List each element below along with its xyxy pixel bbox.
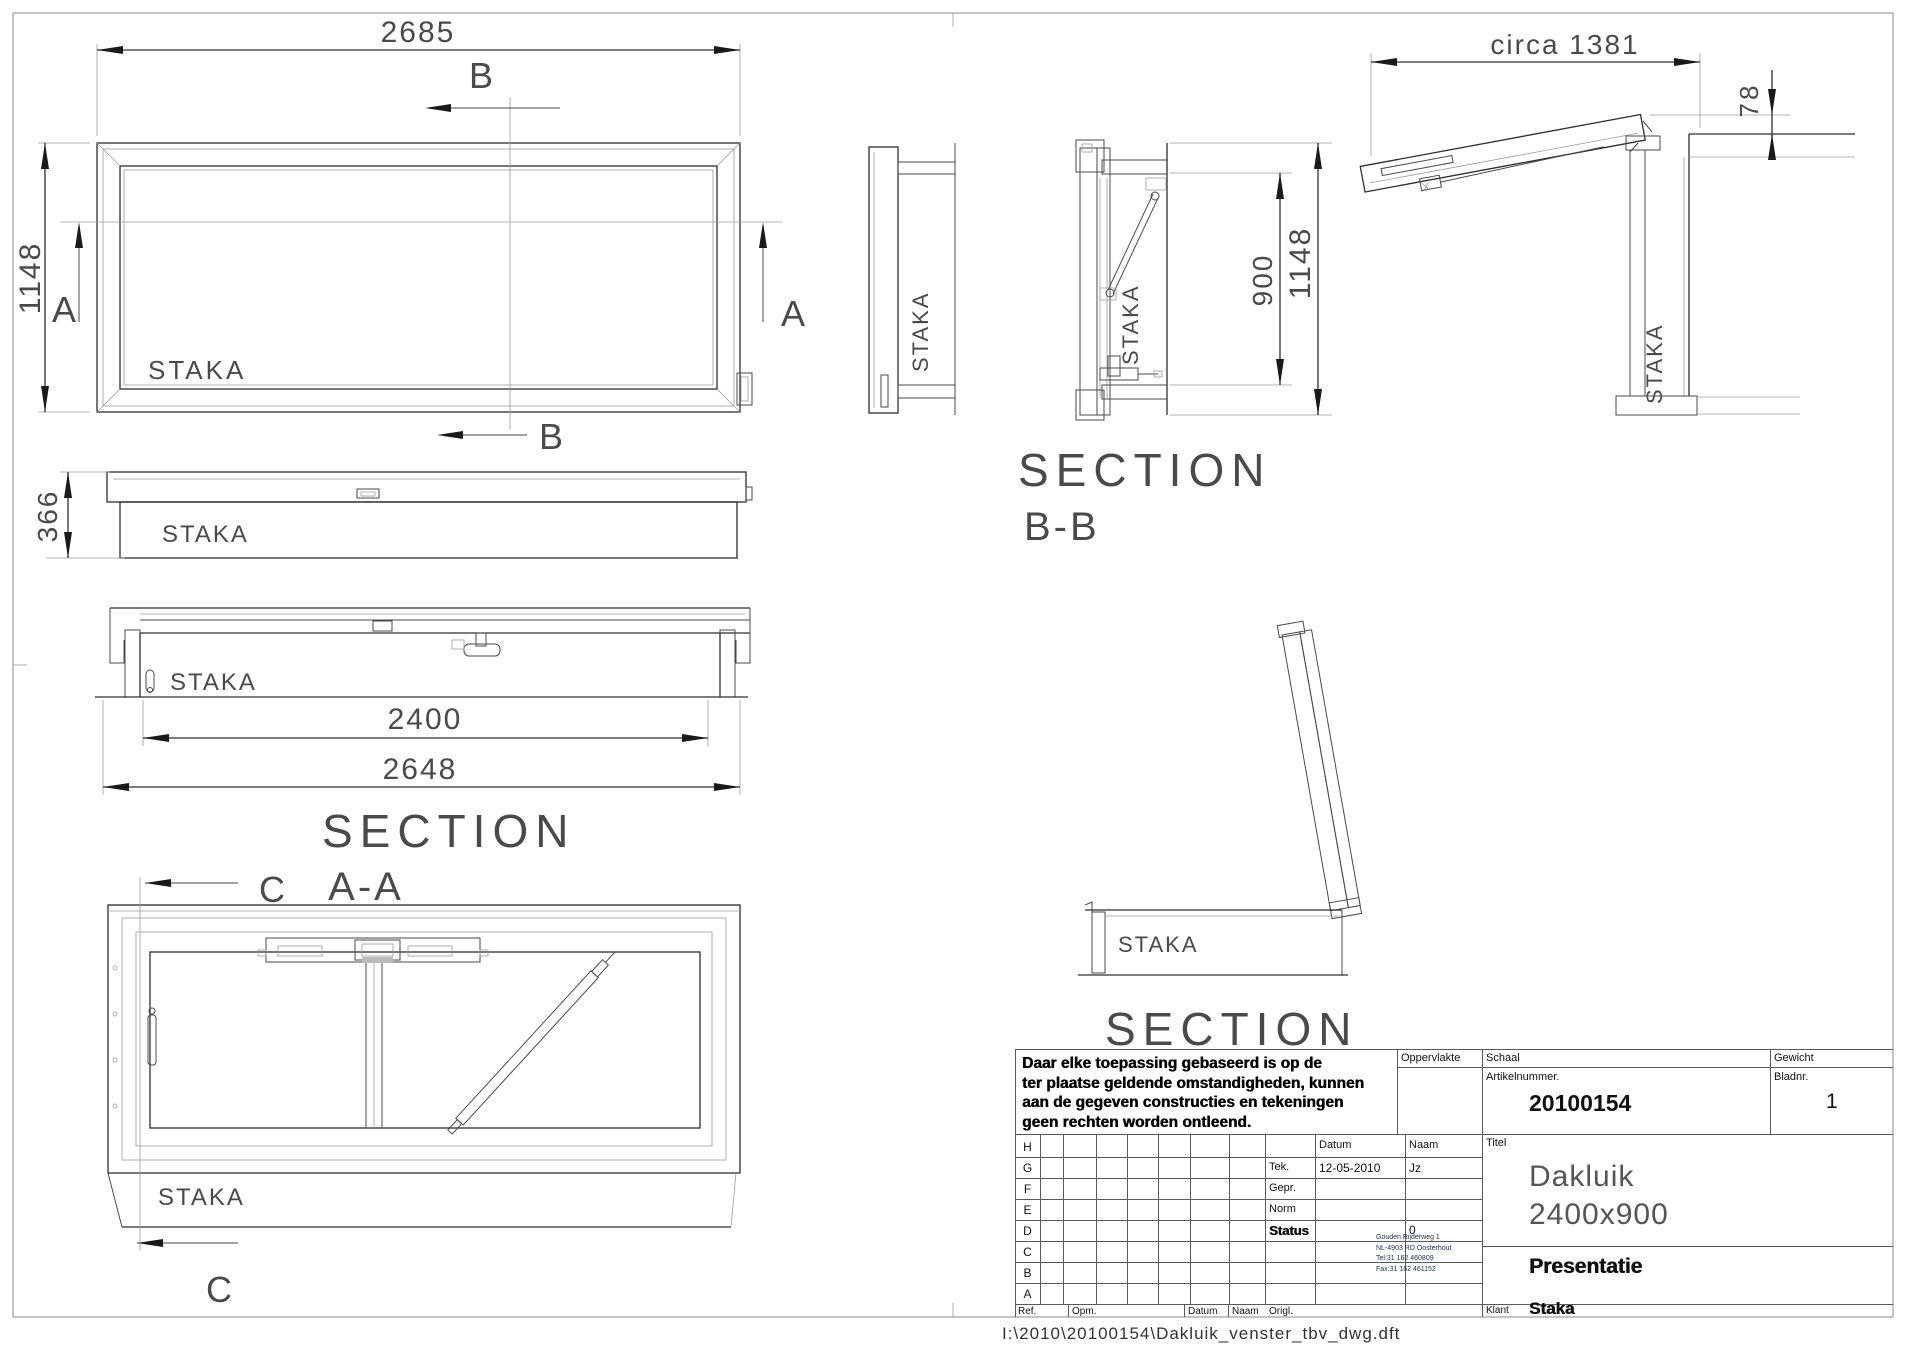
marker-b-bottom: B [539,416,563,457]
dim-bb-outer: 1148 [1284,227,1317,300]
label-titel: Titel [1486,1137,1506,1149]
label-naam-bottom: Naam [1232,1306,1259,1317]
row-letter: E [1015,1199,1040,1220]
value-tek-naam: Jz [1409,1161,1421,1175]
brand-label: STAKA [170,669,257,696]
brand-label: STAKA [1642,323,1667,404]
label-status: Status [1269,1223,1309,1238]
brand-label: STAKA [1118,284,1143,365]
cad-drawing: 2685 1148 A A B B STAKA 366 STAKA [0,0,1920,1360]
row-letter: F [1015,1178,1040,1199]
marker-b-top: B [469,55,493,96]
section-aa-name: A-A [328,865,404,909]
section-bb-title: SECTION [1018,444,1271,496]
row-letter: D [1015,1220,1040,1241]
marker-a-left: A [52,289,76,330]
product-title-line2: 2400x900 [1529,1198,1669,1232]
flange-side-view: STAKA [869,143,955,415]
address-line: Tel:31 162 460809 [1376,1254,1451,1265]
marker-c-top: C [259,869,285,910]
disclaimer-line: Daar elke toepassing gebaseerd is op de [1022,1054,1392,1074]
brand-label: STAKA [162,521,249,548]
label-norm: Norm [1269,1203,1296,1215]
row-letter: G [1015,1157,1040,1178]
side-elevation-view: 366 STAKA [32,472,752,558]
row-letter: A [1015,1283,1040,1304]
label-tek: Tek. [1269,1161,1289,1173]
disclaimer-line: ter plaatse geldende omstandigheden, kun… [1022,1074,1392,1094]
label-ref: Ref. [1018,1306,1036,1317]
disclaimer: Daar elke toepassing gebaseerd is op de … [1022,1054,1392,1132]
row-letter: H [1015,1136,1040,1157]
brand-label: STAKA [148,355,246,385]
label-gepr: Gepr. [1269,1182,1296,1194]
drawing-sheet: 2685 1148 A A B B STAKA 366 STAKA [0,0,1920,1360]
value-klant: Staka [1529,1299,1574,1319]
header-datum: Datum [1319,1139,1351,1151]
brand-label: STAKA [1118,932,1199,957]
brand-label: STAKA [908,291,933,372]
header-naam: Naam [1409,1139,1438,1151]
open-section-view: STAKA SECTION [1078,620,1362,1055]
label-klant: Klant [1486,1305,1509,1316]
label-datum-bottom: Datum [1188,1306,1217,1317]
marker-a-right: A [781,293,805,334]
dim-open-height: 78 [1734,83,1764,118]
sheet-frame [13,13,1893,1317]
section-bb-name: B-B [1024,505,1100,549]
marker-c-bottom: C [206,1269,232,1310]
dim-plan-width: 2685 [381,16,456,49]
value-bladnr: 1 [1826,1090,1838,1114]
dim-aa-inner: 2400 [388,703,463,736]
bottom-view: STAKA C [108,877,740,1310]
row-letter: B [1015,1262,1040,1283]
address-line: NL-4903 RD Oosterhout [1376,1244,1451,1255]
label-gewicht: Gewicht [1774,1052,1814,1064]
doc-type: Presentatie [1529,1255,1642,1279]
row-letter: C [1015,1241,1040,1262]
label-opm: Opm. [1072,1306,1096,1317]
address-line: Fax:31 162 461152 [1376,1265,1451,1276]
section-aa-title: SECTION [322,805,575,857]
label-oppervlakte: Oppervlakte [1401,1052,1460,1064]
dim-side-height: 366 [32,490,63,543]
section-bb-view: STAKA 900 1148 SECTION B-B [1018,140,1332,549]
dim-plan-height: 1148 [14,242,47,315]
label-schaal: Schaal [1486,1052,1520,1064]
label-artikelnummer: Artikelnummer. [1486,1071,1559,1083]
open-hatch-view: STAKA circa 1381 78 [1360,29,1855,415]
product-title-line1: Dakluik [1529,1160,1634,1194]
value-artikelnummer: 20100154 [1529,1090,1631,1117]
disclaimer-line: aan de gegeven constructies en tekeninge… [1022,1093,1392,1113]
plan-view: 2685 1148 A A B B STAKA [14,16,805,457]
dim-bb-inner: 900 [1247,254,1278,307]
company-address: Gouden Rijderweg 1 NL-4903 RD Oosterhout… [1376,1233,1451,1275]
address-line: Gouden Rijderweg 1 [1376,1233,1451,1244]
label-origl: Origl. [1269,1306,1293,1317]
value-tek-datum: 12-05-2010 [1319,1161,1380,1175]
brand-label: STAKA [158,1184,245,1211]
section-aa-view: STAKA 2400 2648 SECTION A-A C [95,608,750,910]
disclaimer-line: geen rechten worden ontleend. [1022,1113,1392,1133]
label-bladnr: Bladnr. [1774,1071,1808,1083]
dim-aa-outer: 2648 [383,753,458,786]
dim-open-width: circa 1381 [1490,29,1639,60]
open-section-title: SECTION [1105,1003,1358,1055]
file-path: I:\2010\20100154\Dakluik_venster_tbv_dwg… [1002,1324,1400,1344]
